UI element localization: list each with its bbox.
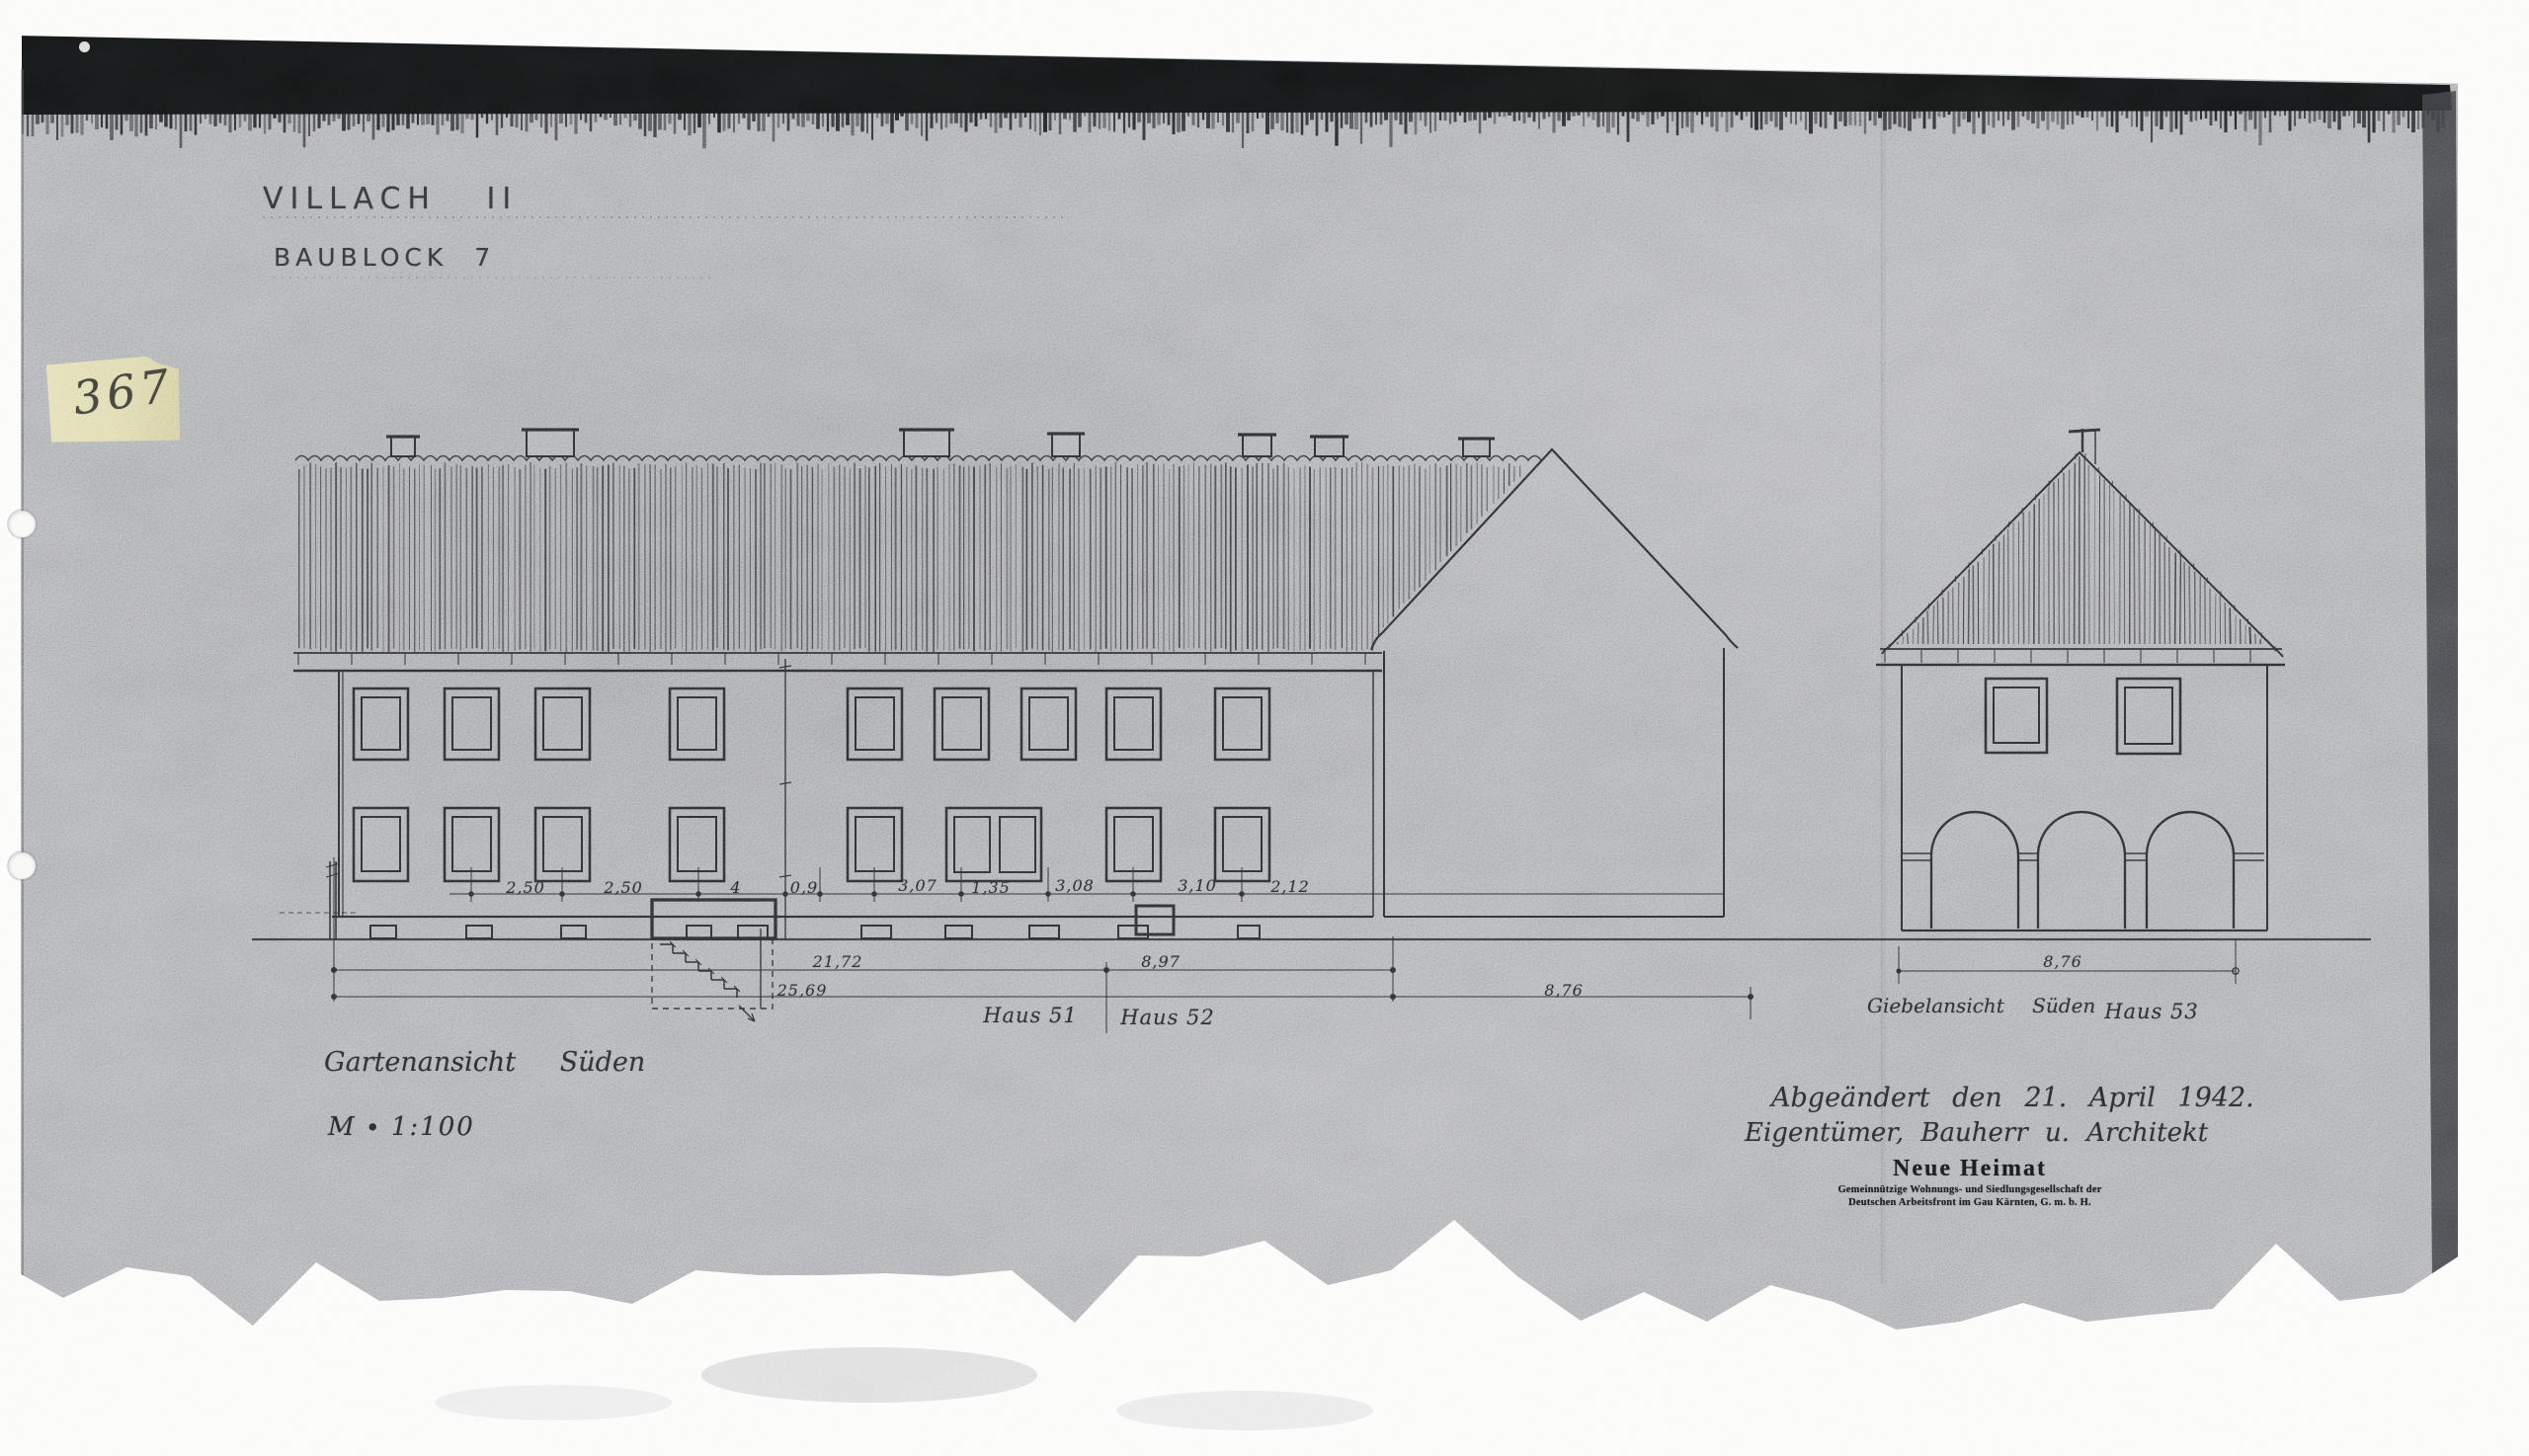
dim-2-50-a: 2,50 [506, 878, 545, 897]
label-scale: M ∙ 1:100 [328, 1112, 475, 1142]
punch-hole-bottom [9, 852, 36, 879]
label-haus-53: Haus 53 [2104, 1000, 2199, 1023]
dim-0-9: 0,9 [790, 878, 818, 897]
dim-8-76-haus53: 8,76 [2043, 952, 2082, 971]
drawing-subtitle: BAUBLOCK 7 [274, 243, 495, 272]
scanned-drawing-sheet: VILLACH II BAUBLOCK 7 2,50 2,50 4 0,9 3,… [0, 0, 2529, 1456]
drawing-title: VILLACH II [263, 182, 518, 216]
dim-1-35: 1,35 [971, 878, 1011, 897]
dim-21-72: 21,72 [813, 952, 863, 971]
dim-25-69: 25,69 [777, 981, 828, 1000]
stamp-line2: Gemeinnützige Wohnungs- und Siedlungsges… [1800, 1184, 2140, 1195]
dim-3-08: 3,08 [1055, 876, 1095, 895]
label-view-right: Giebelansicht Süden [1867, 994, 2095, 1017]
stamp-line3: Deutschen Arbeitsfront im Gau Kärnten, G… [1800, 1197, 2140, 1208]
sticky-note-number: 367 [69, 359, 177, 426]
label-haus-51: Haus 51 [983, 1004, 1078, 1027]
label-view-left: Gartenansicht Süden [324, 1047, 645, 1078]
label-haus-52: Haus 52 [1120, 1006, 1215, 1029]
dim-8-97: 8,97 [1141, 952, 1181, 971]
dim-4: 4 [730, 878, 741, 897]
dim-2-50-b: 2,50 [604, 878, 643, 897]
dim-2-12: 2,12 [1270, 877, 1310, 896]
dim-3-07: 3,07 [898, 876, 938, 895]
dim-3-10: 3,10 [1178, 876, 1217, 895]
dim-8-76-gable: 8,76 [1544, 981, 1584, 1000]
stamp-name: Neue Heimat [1800, 1156, 2140, 1182]
sticky-note: 367 [46, 356, 182, 445]
date-line: Abgeändert den 21. April 1942. [1771, 1083, 2254, 1113]
company-stamp: Neue Heimat Gemeinnützige Wohnungs- und … [1800, 1156, 2140, 1208]
credit-line: Eigentümer, Bauherr u. Architekt [1745, 1118, 2208, 1148]
punch-hole-top [9, 511, 36, 537]
scan-speck [79, 41, 90, 52]
